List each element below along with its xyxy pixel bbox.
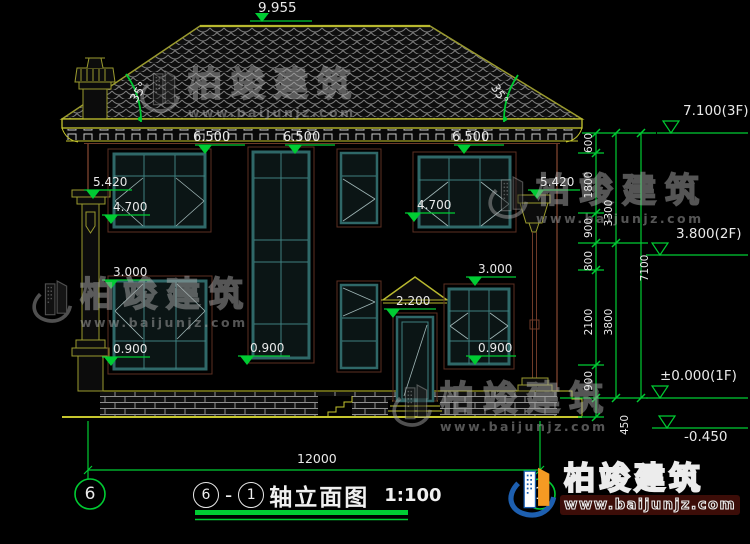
dim-left-3000: 3.000 — [113, 266, 147, 278]
drawing-title: 6 - 1 轴立面图 1:100 — [193, 478, 442, 512]
watermark-logo-icon — [30, 278, 74, 325]
dim-right-4700: 4.700 — [417, 199, 451, 211]
title-scale: 1:100 — [384, 485, 441, 506]
chain-800: 800 — [584, 251, 595, 271]
dim-left-0900: 0.900 — [113, 343, 147, 355]
chain-900a: 900 — [584, 218, 595, 238]
chain-3800: 3800 — [604, 309, 615, 336]
dim-canopy-2200: 2.200 — [396, 295, 430, 307]
elevation-drawing: 柏竣建筑 www.baijunjz.com 柏竣建筑 www.baijunjz.… — [0, 0, 750, 544]
watermark-top: 柏竣建筑 www.baijunjz.com — [138, 68, 360, 120]
brand-url: www.baijunjz.com — [564, 497, 736, 513]
title-axis-end: 1 — [238, 482, 264, 508]
level-3f: 7.100(3F) — [683, 105, 749, 119]
watermark-url: www.baijunjz.com — [188, 105, 360, 120]
dim-eave-3: 6.500 — [452, 131, 489, 144]
watermark-url: www.baijunjz.com — [80, 315, 252, 330]
watermark-right: 柏竣建筑 www.baijunjz.com — [486, 174, 708, 226]
eave-cornice — [62, 119, 582, 144]
level-1f: ±0.000(1F) — [660, 370, 737, 384]
title-name: 轴立面图 — [269, 478, 369, 512]
watermark-logo-icon — [390, 382, 434, 429]
dim-right-5420: 5.420 — [540, 176, 574, 188]
watermark-left: 柏竣建筑 www.baijunjz.com — [30, 278, 252, 330]
level-ground: -0.450 — [684, 431, 728, 445]
chain-450: 450 — [620, 415, 631, 435]
title-separator: - — [225, 483, 232, 507]
watermark-brand: 柏竣建筑 — [188, 68, 360, 102]
dim-center-sill-0900: 0.900 — [250, 342, 284, 354]
chain-900b: 900 — [584, 371, 595, 391]
chain-1800: 1800 — [584, 172, 595, 199]
dim-left-4700: 4.700 — [113, 201, 147, 213]
watermark-url: www.baijunjz.com — [536, 211, 708, 226]
chain-7100: 7100 — [640, 255, 651, 282]
dim-eave-1: 6.500 — [193, 131, 230, 144]
dim-eave-2: 6.500 — [283, 131, 320, 144]
watermark-url: www.baijunjz.com — [440, 419, 612, 434]
window-stair — [248, 147, 314, 363]
watermark-bottom: 柏竣建筑 www.baijunjz.com — [390, 382, 612, 434]
chain-3300: 3300 — [604, 200, 615, 227]
brand-name: 柏竣建筑 — [564, 464, 736, 495]
brand-logo-icon — [506, 464, 558, 520]
dim-right-3000: 3.000 — [478, 263, 512, 275]
window-1f-mid — [337, 281, 381, 372]
dim-overall-width: 12000 — [297, 453, 337, 466]
dim-right-0900: 0.900 — [478, 342, 512, 354]
chain-2100: 2100 — [584, 309, 595, 336]
dim-left-5420: 5.420 — [93, 176, 127, 188]
dim-ridge-height: 9.955 — [258, 2, 297, 16]
watermark-logo-icon — [486, 174, 530, 221]
chain-600: 600 — [584, 133, 595, 153]
watermark-brand: 柏竣建筑 — [80, 278, 252, 312]
brand-logo: 柏竣建筑 www.baijunjz.com — [506, 464, 736, 520]
level-2f: 3.800(2F) — [676, 228, 742, 242]
window-2f-mid — [337, 149, 381, 227]
axis-bubble-left: 6 — [75, 479, 105, 509]
title-axis-start: 6 — [193, 482, 219, 508]
